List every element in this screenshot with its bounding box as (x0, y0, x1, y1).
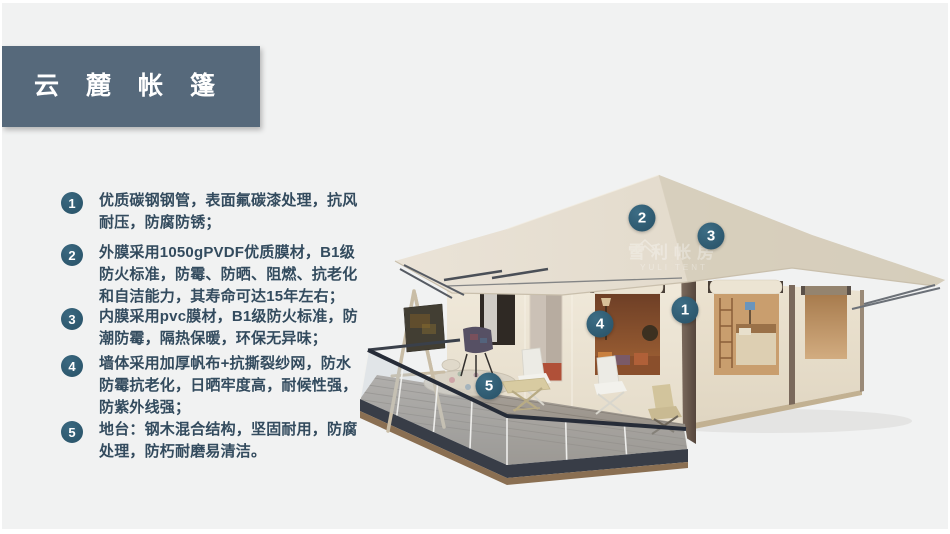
callout-marker-4: 4 (587, 311, 614, 338)
feature-item: 2外膜采用1050gPVDF优质膜材，B1级防火标准，防霉、防晒、阻燃、抗老化和… (61, 242, 359, 308)
feature-number-badge: 3 (61, 308, 83, 330)
feature-text: 地台：钢木混合结构，坚固耐用，防腐处理，防朽耐磨易清洁。 (99, 419, 359, 463)
feature-number-badge: 2 (61, 244, 83, 266)
feature-number-badge: 5 (61, 421, 83, 443)
feature-item: 4墙体采用加厚帆布+抗撕裂纱网，防水防霉抗老化，日晒牢度高，耐候性强，防紫外线强… (61, 353, 359, 419)
feature-text: 优质碳钢钢管，表面氟碳漆处理，抗风耐压，防腐防锈； (99, 190, 359, 234)
feature-number-badge: 1 (61, 192, 83, 214)
callout-marker-5: 5 (476, 373, 503, 400)
feature-text: 内膜采用pvc膜材，B1级防火标准，防潮防霉，隔热保暖，环保无异味； (99, 306, 359, 350)
slide: 云麓帐篷 1优质碳钢钢管，表面氟碳漆处理，抗风耐压，防腐防锈；2外膜采用1050… (0, 0, 950, 534)
feature-item: 1优质碳钢钢管，表面氟碳漆处理，抗风耐压，防腐防锈； (61, 190, 359, 234)
feature-number-badge: 4 (61, 355, 83, 377)
callout-marker-1: 1 (672, 297, 699, 324)
features-list: 1优质碳钢钢管，表面氟碳漆处理，抗风耐压，防腐防锈；2外膜采用1050gPVDF… (61, 3, 381, 534)
callout-marker-3: 3 (698, 223, 725, 250)
feature-item: 5地台：钢木混合结构，坚固耐用，防腐处理，防朽耐磨易清洁。 (61, 419, 359, 463)
callout-marker-2: 2 (629, 205, 656, 232)
tent-drawing (352, 128, 950, 488)
tent-illustration: 雪利帐房 YULI TENT 12345 (352, 128, 950, 488)
feature-item: 3内膜采用pvc膜材，B1级防火标准，防潮防霉，隔热保暖，环保无异味； (61, 306, 359, 350)
feature-text: 外膜采用1050gPVDF优质膜材，B1级防火标准，防霉、防晒、阻燃、抗老化和自… (99, 242, 359, 308)
feature-text: 墙体采用加厚帆布+抗撕裂纱网，防水防霉抗老化，日晒牢度高，耐候性强，防紫外线强； (99, 353, 359, 419)
